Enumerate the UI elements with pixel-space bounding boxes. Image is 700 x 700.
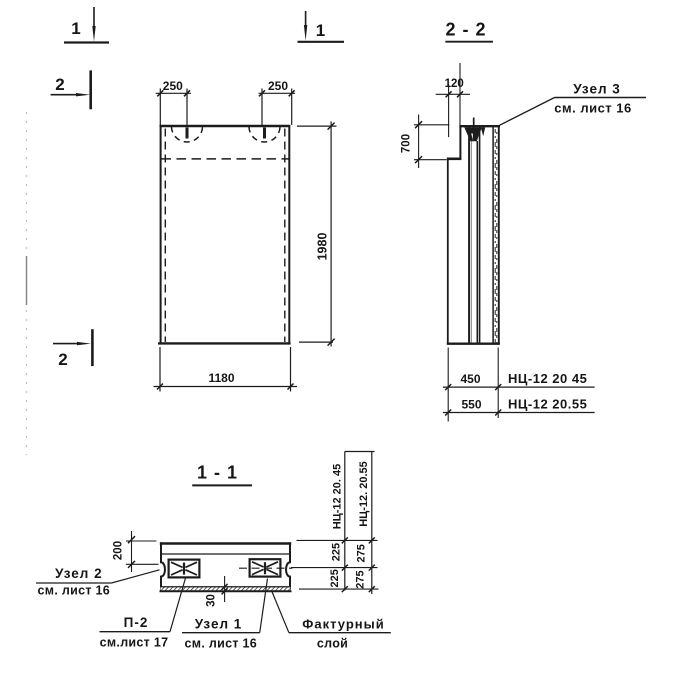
svg-text:1980: 1980 [316, 233, 330, 261]
svg-text:см. лист 16: см. лист 16 [38, 584, 111, 598]
svg-text:200: 200 [113, 541, 125, 560]
svg-text:1: 1 [316, 21, 325, 40]
svg-text:НЦ-12. 20.55: НЦ-12. 20.55 [358, 461, 370, 527]
svg-text:2: 2 [58, 350, 67, 369]
svg-text:120: 120 [445, 78, 464, 90]
svg-text:1: 1 [71, 19, 80, 38]
svg-text:см. лист 16: см. лист 16 [185, 637, 258, 651]
svg-text:700: 700 [401, 134, 413, 153]
svg-text:1180: 1180 [208, 371, 234, 385]
svg-text:НЦ-12 20.55: НЦ-12 20.55 [508, 397, 587, 412]
svg-text:250: 250 [268, 79, 288, 93]
svg-text:см. лист 16: см. лист 16 [554, 101, 632, 116]
svg-text:250: 250 [163, 79, 183, 93]
svg-text:Узел 1: Узел 1 [195, 617, 243, 632]
svg-text:1 - 1: 1 - 1 [197, 463, 238, 483]
svg-text:НЦ-12 20 45: НЦ-12 20 45 [508, 371, 587, 386]
svg-text:450: 450 [460, 372, 480, 386]
svg-text:Узел 2: Узел 2 [55, 566, 103, 581]
svg-text:П-2: П-2 [124, 615, 149, 630]
svg-text:225: 225 [329, 569, 341, 587]
svg-text:2 - 2: 2 - 2 [445, 20, 486, 40]
svg-text:2: 2 [55, 75, 64, 94]
svg-text:слой: слой [317, 637, 348, 651]
svg-text:275: 275 [355, 544, 367, 562]
svg-text:Фактурный: Фактурный [302, 617, 384, 632]
svg-text:30: 30 [206, 594, 218, 607]
svg-text:см.лист 17: см.лист 17 [100, 636, 169, 650]
svg-text:Узел 3: Узел 3 [573, 82, 621, 97]
svg-text:550: 550 [461, 398, 481, 412]
svg-text:275: 275 [354, 570, 366, 588]
svg-text:НЦ-12 20. 45: НЦ-12 20. 45 [331, 464, 343, 530]
svg-text:225: 225 [330, 543, 342, 561]
